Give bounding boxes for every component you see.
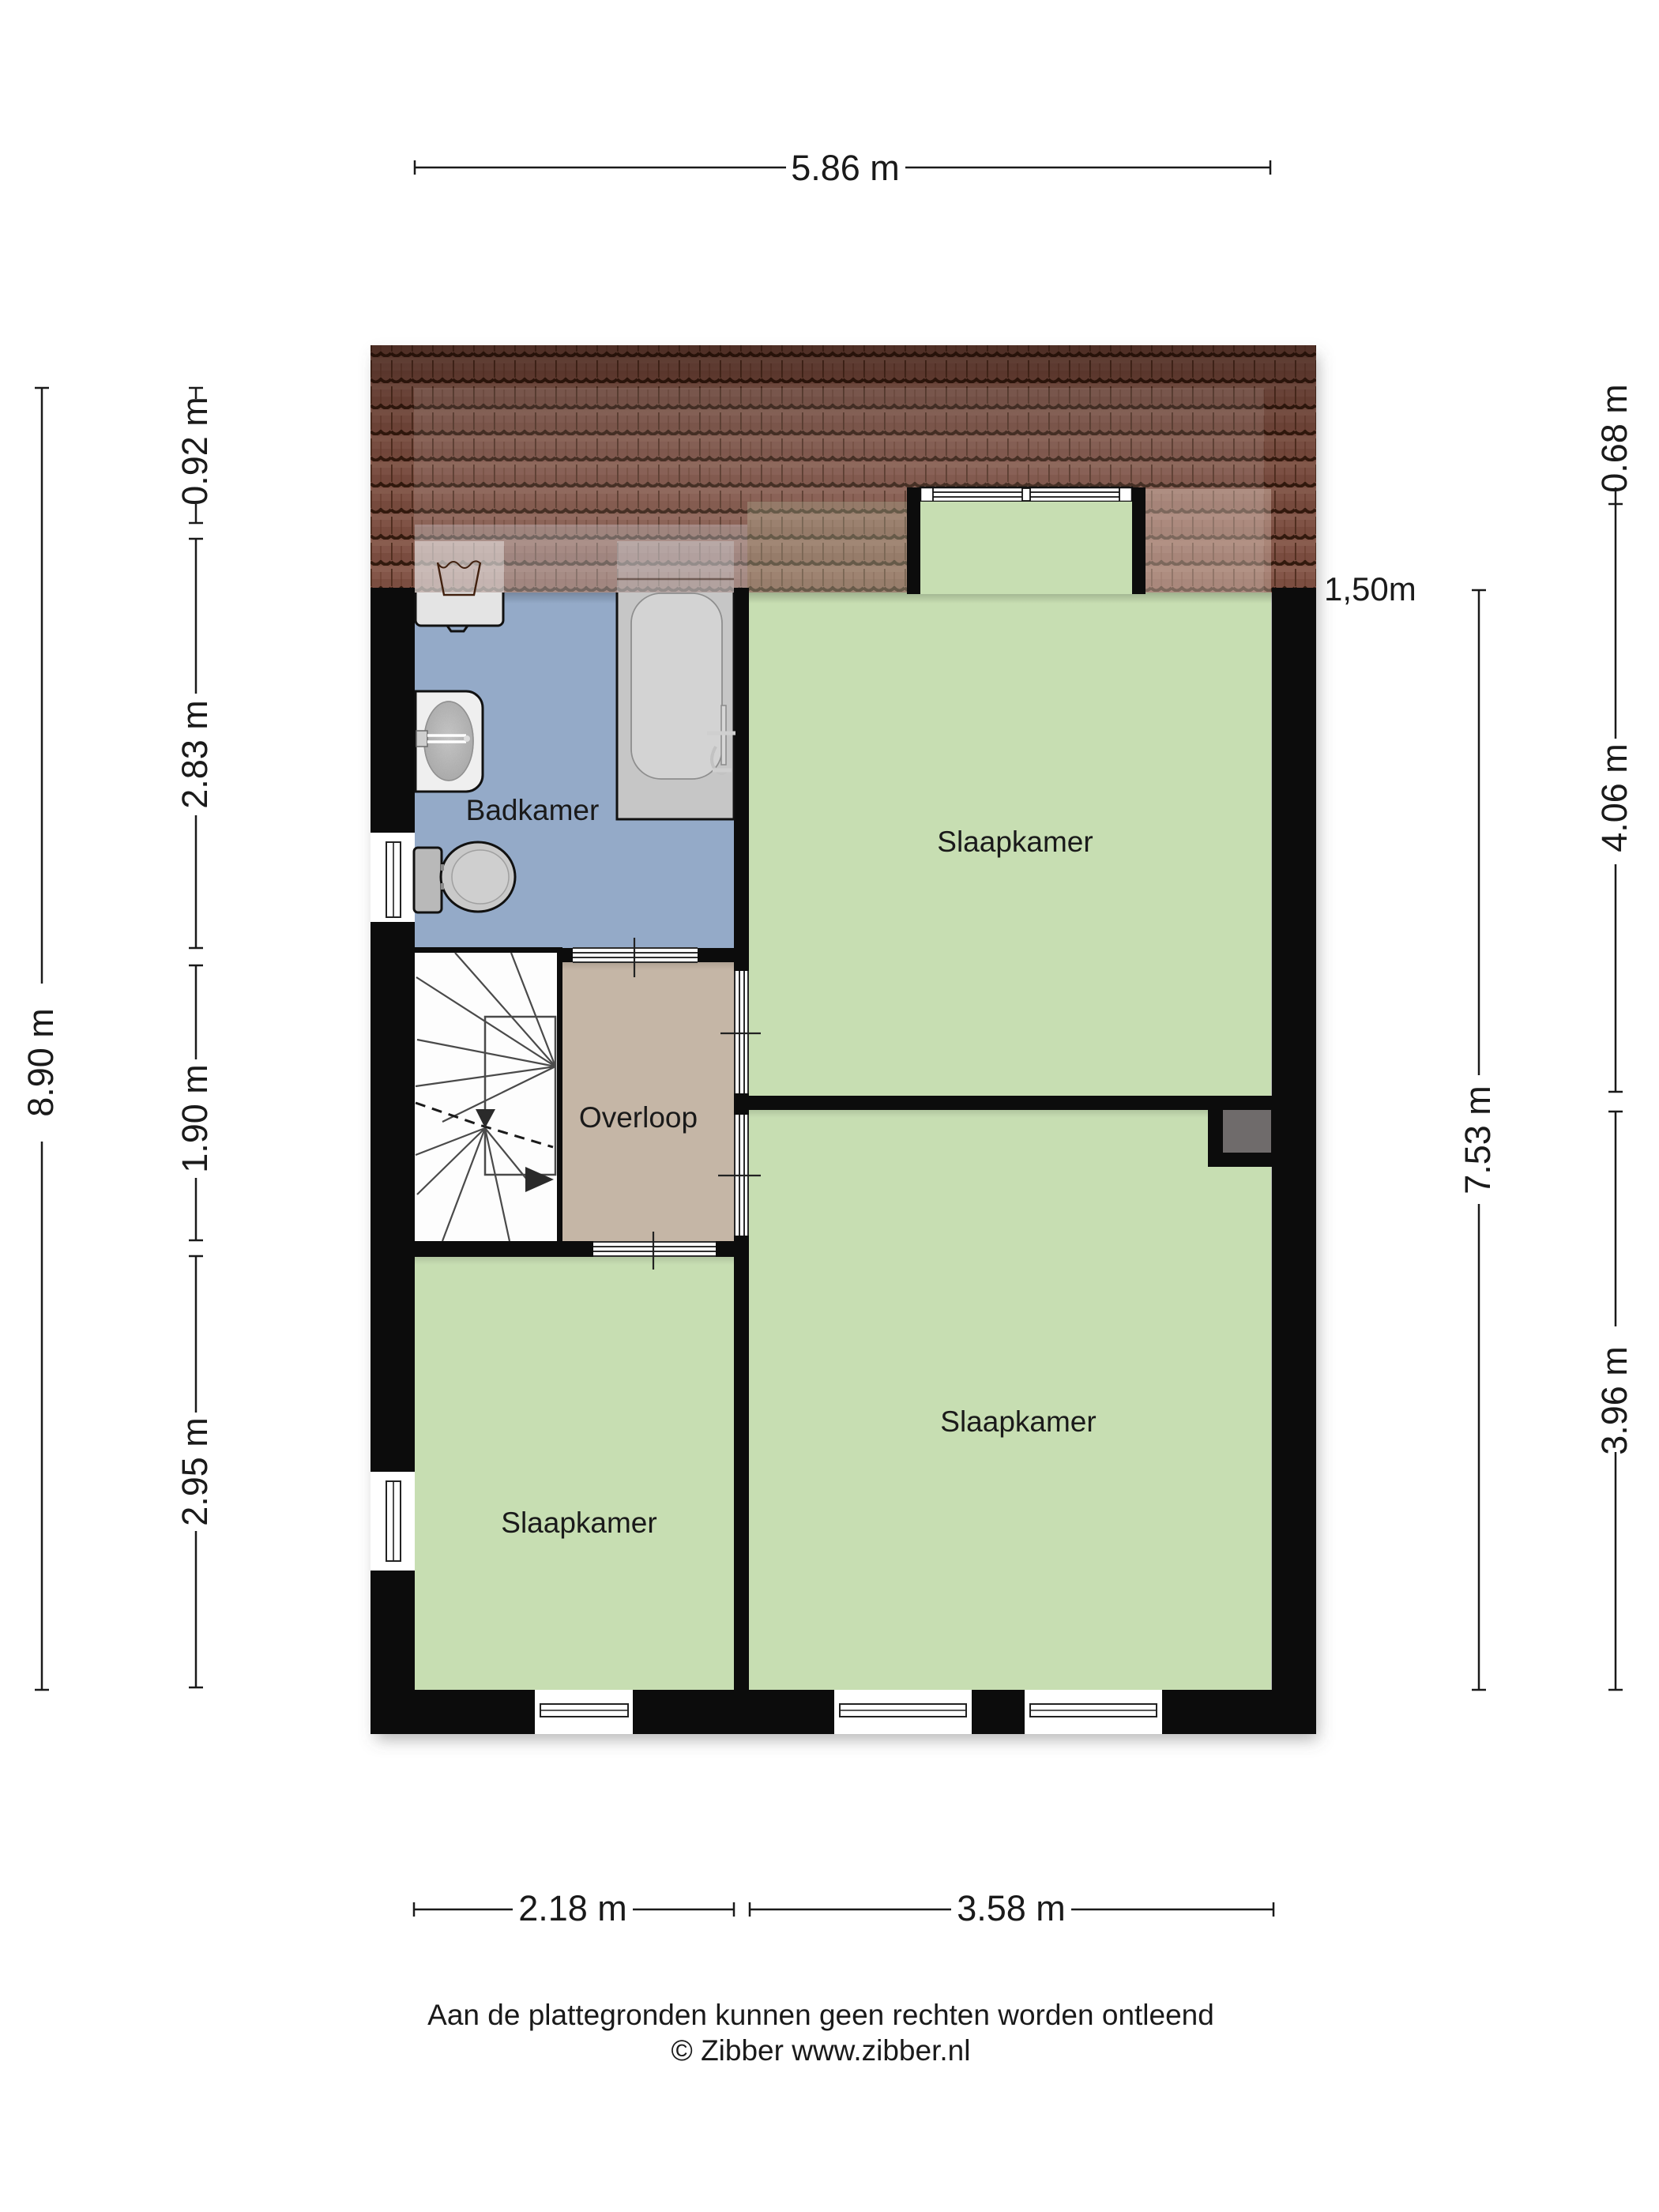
svg-text:Badkamer: Badkamer: [466, 794, 600, 826]
svg-text:Slaapkamer: Slaapkamer: [501, 1507, 656, 1539]
svg-text:© Zibber www.zibber.nl: © Zibber www.zibber.nl: [671, 2034, 971, 2067]
svg-text:5.86 m: 5.86 m: [791, 148, 900, 188]
svg-text:3.96 m: 3.96 m: [1594, 1346, 1635, 1455]
svg-text:2.95 m: 2.95 m: [175, 1417, 215, 1526]
svg-text:1,50m: 1,50m: [1324, 570, 1416, 608]
svg-text:0.68 m: 0.68 m: [1594, 384, 1635, 493]
svg-text:0.92 m: 0.92 m: [175, 397, 215, 506]
svg-text:Slaapkamer: Slaapkamer: [937, 826, 1093, 858]
svg-text:7.53 m: 7.53 m: [1458, 1085, 1498, 1194]
svg-text:3.58 m: 3.58 m: [957, 1888, 1066, 1928]
svg-text:Slaapkamer: Slaapkamer: [940, 1405, 1096, 1438]
svg-text:2.18 m: 2.18 m: [518, 1888, 627, 1928]
svg-text:1.90 m: 1.90 m: [175, 1064, 215, 1173]
svg-text:Aan de plattegronden kunnen ge: Aan de plattegronden kunnen geen rechten…: [427, 1999, 1214, 2031]
svg-text:Overloop: Overloop: [579, 1101, 698, 1134]
svg-text:8.90 m: 8.90 m: [21, 1008, 61, 1117]
svg-text:4.06 m: 4.06 m: [1594, 743, 1635, 852]
svg-text:2.83 m: 2.83 m: [175, 700, 215, 809]
